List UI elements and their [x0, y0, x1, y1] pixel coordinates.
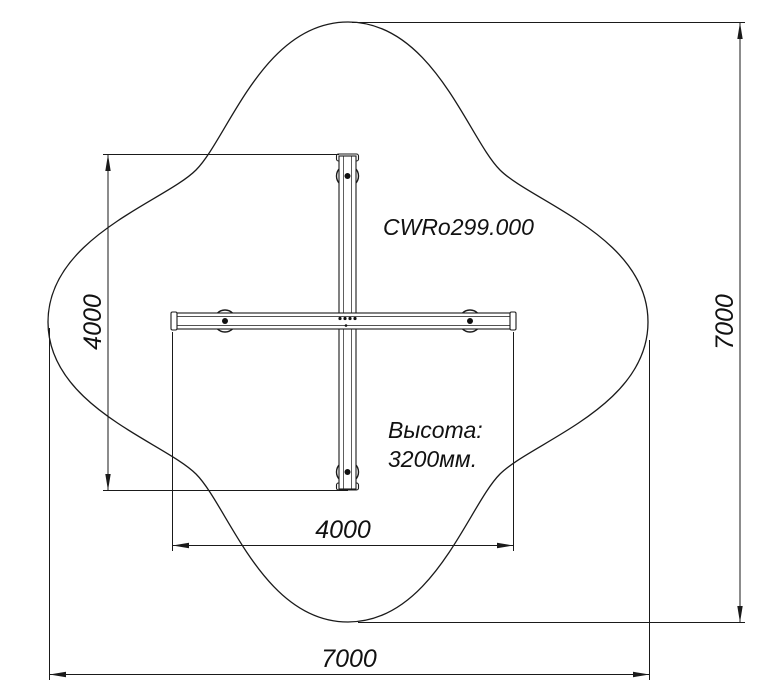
drawing-svg: 4000 4000 7000 7000 CWRo299.000 Высота: …: [0, 0, 782, 693]
bolt-dot-bottom: [345, 469, 351, 475]
height-note-line2: 3200мм.: [388, 446, 477, 472]
annotations: CWRo299.000 Высота: 3200мм.: [383, 214, 534, 472]
arrow-right: [633, 672, 650, 677]
arrow-left: [173, 543, 190, 548]
bolt-dot-left: [222, 318, 228, 324]
bolt-dot-top: [345, 173, 351, 179]
dimension-value-structure-width: 4000: [315, 516, 371, 544]
dimension-value-zone-height: 7000: [711, 294, 739, 350]
bolt-dot-right: [467, 318, 473, 324]
arrow-down: [105, 474, 110, 491]
arrow-up: [105, 155, 110, 172]
horizontal-beam-right-cap: [510, 312, 516, 330]
model-number-label: CWRo299.000: [383, 214, 534, 240]
horizontal-beam: [171, 310, 516, 332]
dimension-value-zone-width: 7000: [321, 645, 377, 673]
dimension-value-structure-height: 4000: [79, 294, 107, 350]
arrow-right: [497, 543, 514, 548]
height-note-line1: Высота:: [388, 417, 483, 443]
arrow-down: [737, 606, 742, 623]
arrow-up: [737, 23, 742, 40]
technical-drawing-canvas: 4000 4000 7000 7000 CWRo299.000 Высота: …: [0, 0, 782, 693]
horizontal-beam-left-cap: [171, 312, 177, 330]
arrow-left: [50, 672, 67, 677]
